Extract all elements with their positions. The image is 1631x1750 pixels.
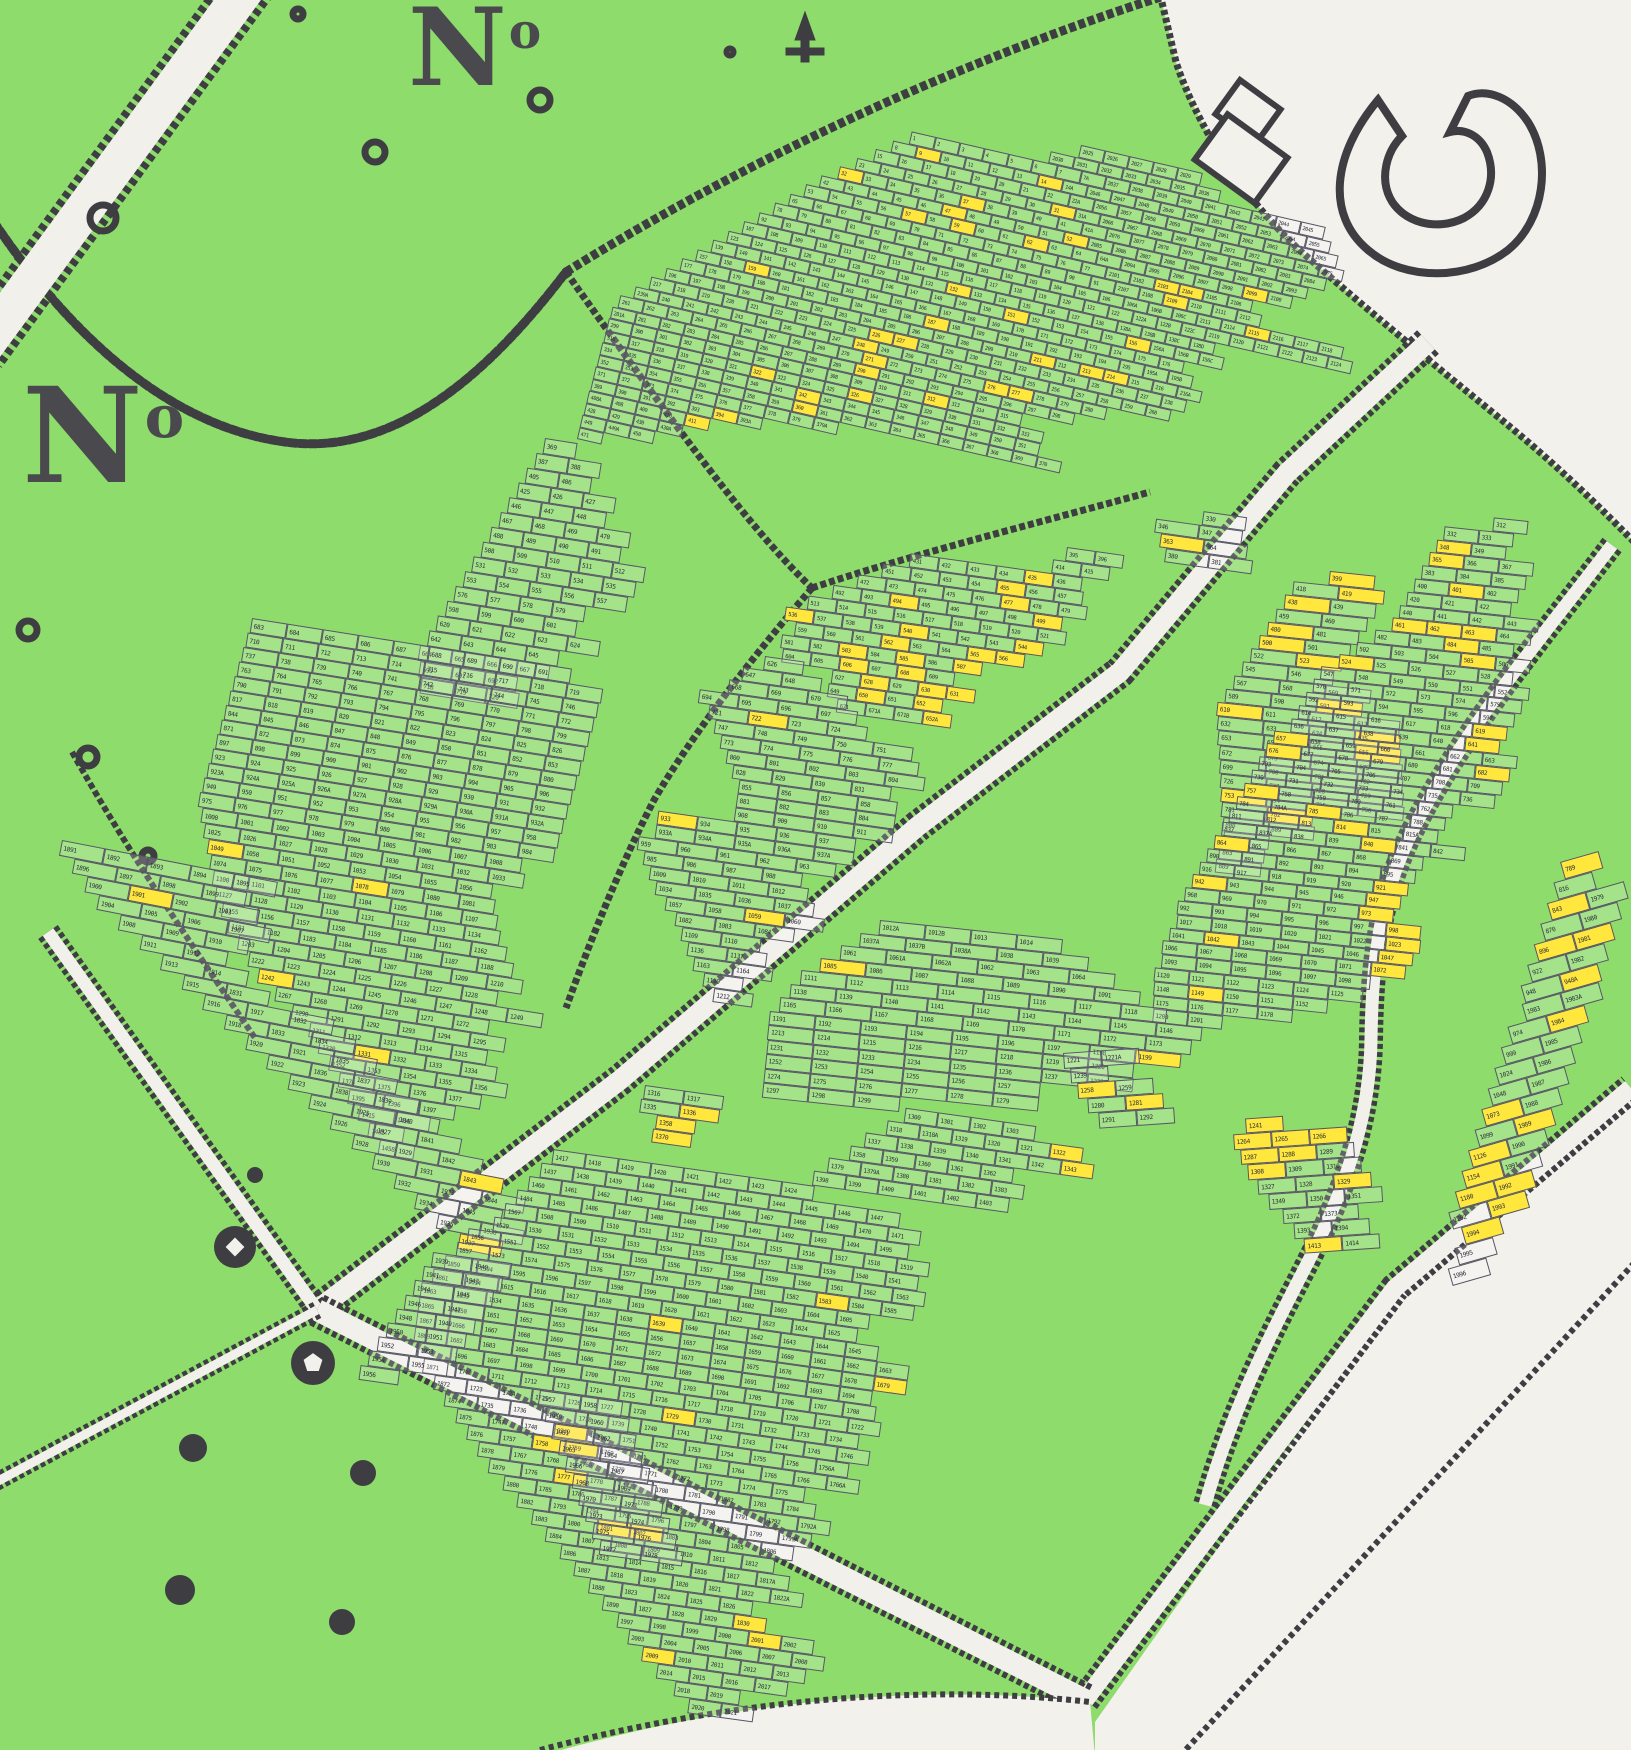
plot-cell[interactable]: 631 bbox=[946, 686, 977, 704]
plot-cell[interactable]: 1072 bbox=[1370, 962, 1406, 979]
plot-cell[interactable]: 1342 bbox=[1027, 1155, 1062, 1174]
degree-mark: o bbox=[509, 3, 543, 60]
north-label-top: No bbox=[408, 0, 543, 97]
plot-cell[interactable]: 1401 bbox=[910, 1184, 945, 1203]
plot-cell[interactable]: 370 bbox=[1035, 456, 1062, 474]
plot-cell[interactable]: 1351 bbox=[1344, 1186, 1383, 1204]
plot-cell[interactable]: 2021 bbox=[720, 1703, 755, 1722]
plot-cell[interactable]: 2020 bbox=[687, 1698, 722, 1717]
plot-cell[interactable]: 1398 bbox=[812, 1171, 847, 1190]
plot-cell[interactable]: 1585 bbox=[880, 1301, 915, 1320]
plot-cell[interactable]: 2124 bbox=[1326, 356, 1353, 374]
plot-cell[interactable]: 624 bbox=[566, 636, 601, 657]
plot-cell[interactable]: 1403 bbox=[975, 1194, 1010, 1213]
plot-cell[interactable]: 1679 bbox=[873, 1376, 908, 1395]
plot-cell[interactable]: 1766A bbox=[825, 1475, 860, 1494]
plot-cell[interactable]: 736 bbox=[1459, 791, 1495, 808]
north-label-left: No bbox=[22, 378, 186, 497]
plot-cell[interactable]: 1822A bbox=[770, 1589, 805, 1608]
plot-cell[interactable]: 671A bbox=[865, 703, 896, 721]
plot-cell[interactable]: 1402 bbox=[942, 1189, 977, 1208]
degree-mark: o bbox=[145, 382, 187, 452]
plot-cell[interactable]: 1249 bbox=[506, 1008, 544, 1028]
plot-row: 1996 bbox=[1448, 1258, 1491, 1286]
plot-cell[interactable]: 2017 bbox=[754, 1677, 789, 1696]
plot-cell[interactable]: 1292 bbox=[1136, 1107, 1175, 1125]
plot-row: 20202021 bbox=[687, 1698, 754, 1722]
plot-cell[interactable]: 1996 bbox=[1448, 1258, 1491, 1286]
plot-cell[interactable]: 652A bbox=[922, 711, 953, 729]
plot-cell[interactable]: 587 bbox=[953, 658, 984, 676]
plot-cell[interactable]: 1125 bbox=[1327, 986, 1363, 1003]
cemetery-plot-map: 2025202620272028202920302031203220332034… bbox=[0, 0, 1631, 1750]
plot-cell[interactable]: 156C bbox=[1198, 352, 1225, 370]
plot-cell[interactable]: 1212 bbox=[712, 988, 754, 1007]
plot-cell[interactable]: 1399 bbox=[844, 1175, 879, 1194]
plot-blocks-layer: 2025202620272028202920302031203220332034… bbox=[0, 0, 1631, 1750]
plot-cell[interactable]: 415 bbox=[1080, 563, 1111, 581]
plot-cell[interactable]: 1400 bbox=[877, 1180, 912, 1199]
plot-cell[interactable]: 1178 bbox=[1256, 1006, 1292, 1023]
plot-cell[interactable]: 1414 bbox=[1342, 1233, 1381, 1251]
plot-cell[interactable]: 1413 bbox=[1304, 1235, 1343, 1253]
plot-cell[interactable]: 1152 bbox=[1292, 996, 1328, 1013]
plot-cell[interactable]: 1343 bbox=[1060, 1160, 1095, 1179]
plot-cell[interactable]: 1291 bbox=[1098, 1110, 1137, 1128]
plot-cell[interactable]: 1221A bbox=[1101, 1048, 1140, 1066]
plot-cell[interactable]: 671B bbox=[893, 707, 924, 725]
plot-row: 1212 bbox=[712, 988, 754, 1007]
plot-cell[interactable]: 1177 bbox=[1222, 1002, 1258, 1019]
plot-cell[interactable]: 842 bbox=[1429, 844, 1465, 861]
plot-cell[interactable]: 2014 bbox=[656, 1664, 691, 1683]
plot-cell[interactable]: 605 bbox=[810, 653, 841, 671]
plot-cell[interactable]: 566 bbox=[995, 650, 1026, 668]
